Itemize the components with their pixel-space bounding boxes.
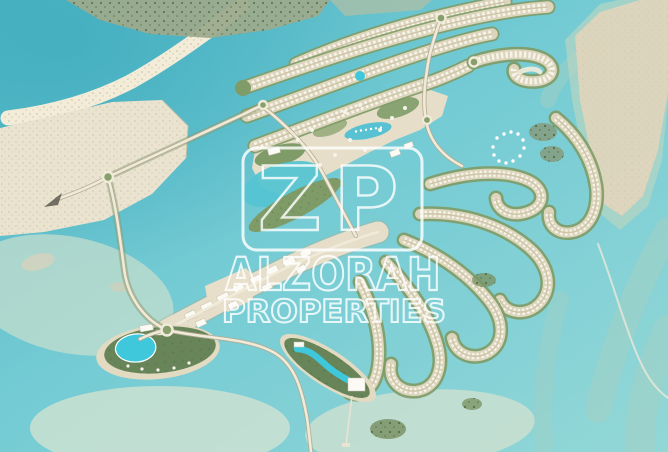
watermark-logo-monogram: ZP — [258, 148, 410, 251]
masterplan-map: ZP ALZORAH PROPERTIES — [0, 0, 668, 452]
lagoon-pool — [116, 334, 156, 362]
map-canvas: ZP ALZORAH PROPERTIES — [0, 0, 668, 452]
hotel-block — [348, 378, 365, 391]
watermark-subtitle: PROPERTIES — [222, 294, 446, 330]
